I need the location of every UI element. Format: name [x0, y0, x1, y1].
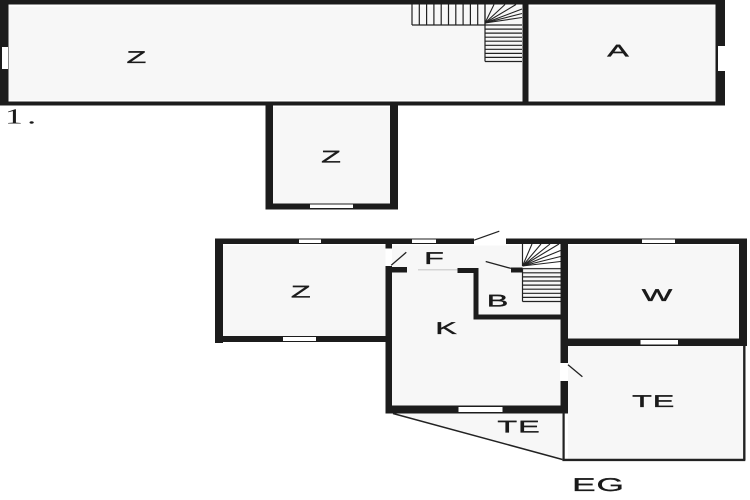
svg-text:Z: Z: [127, 48, 147, 67]
svg-text:B: B: [487, 291, 509, 310]
svg-text:EG: EG: [572, 474, 625, 495]
svg-text:Z: Z: [291, 283, 311, 302]
svg-text:TE: TE: [632, 392, 675, 411]
svg-text:W: W: [642, 286, 672, 305]
svg-text:TE: TE: [497, 417, 540, 436]
svg-text:F: F: [424, 249, 444, 268]
svg-text:A: A: [607, 42, 630, 61]
svg-text:1.: 1.: [5, 104, 40, 128]
svg-text:K: K: [435, 319, 458, 338]
svg-text:Z: Z: [321, 147, 341, 166]
